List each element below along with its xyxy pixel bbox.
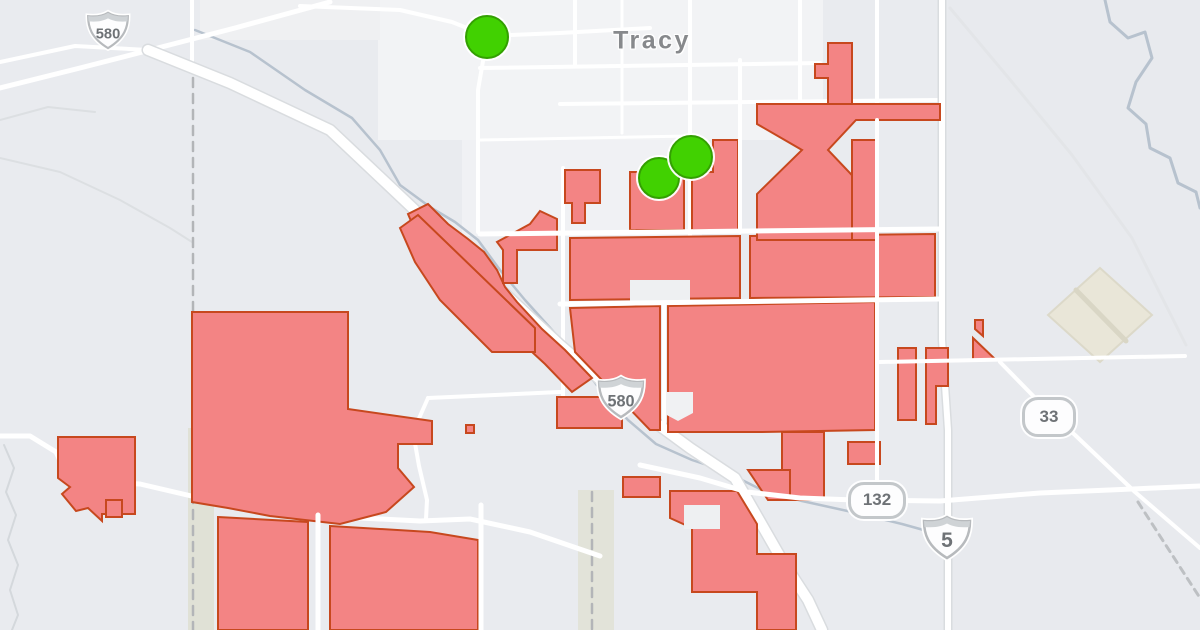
outage-marker-green[interactable] — [465, 15, 509, 59]
highway-shield-oval-33: 33 — [1022, 397, 1076, 437]
shield-label: 33 — [1040, 407, 1059, 427]
highway-shield-interstate-580: 580 — [82, 11, 134, 49]
svg-text:580: 580 — [96, 27, 120, 43]
highway-shield-interstate-5: 5 — [922, 514, 972, 560]
svg-text:5: 5 — [941, 529, 953, 552]
svg-text:580: 580 — [607, 393, 634, 411]
basemap-layer — [0, 0, 1200, 630]
highway-shield-oval-132: 132 — [848, 482, 906, 519]
outage-marker-green[interactable] — [669, 135, 713, 179]
city-label: Tracy — [613, 27, 691, 56]
outage-map-canvas[interactable]: Tracy 580 580 533132 — [0, 0, 1200, 630]
shield-label: 132 — [863, 490, 891, 510]
highway-shield-interstate-580: 580 — [592, 376, 650, 418]
